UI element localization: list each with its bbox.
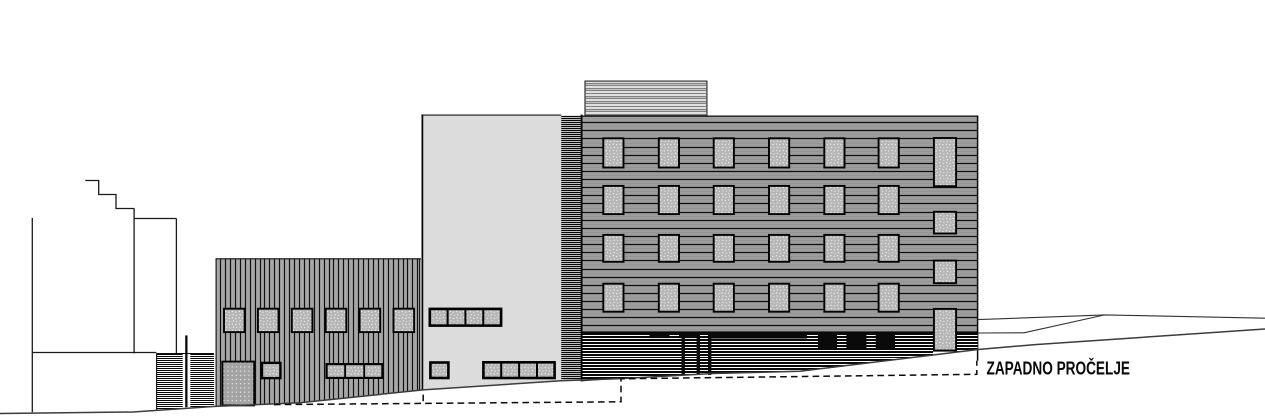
svg-text:ZAPADNO PROČELJE: ZAPADNO PROČELJE [987,358,1131,379]
